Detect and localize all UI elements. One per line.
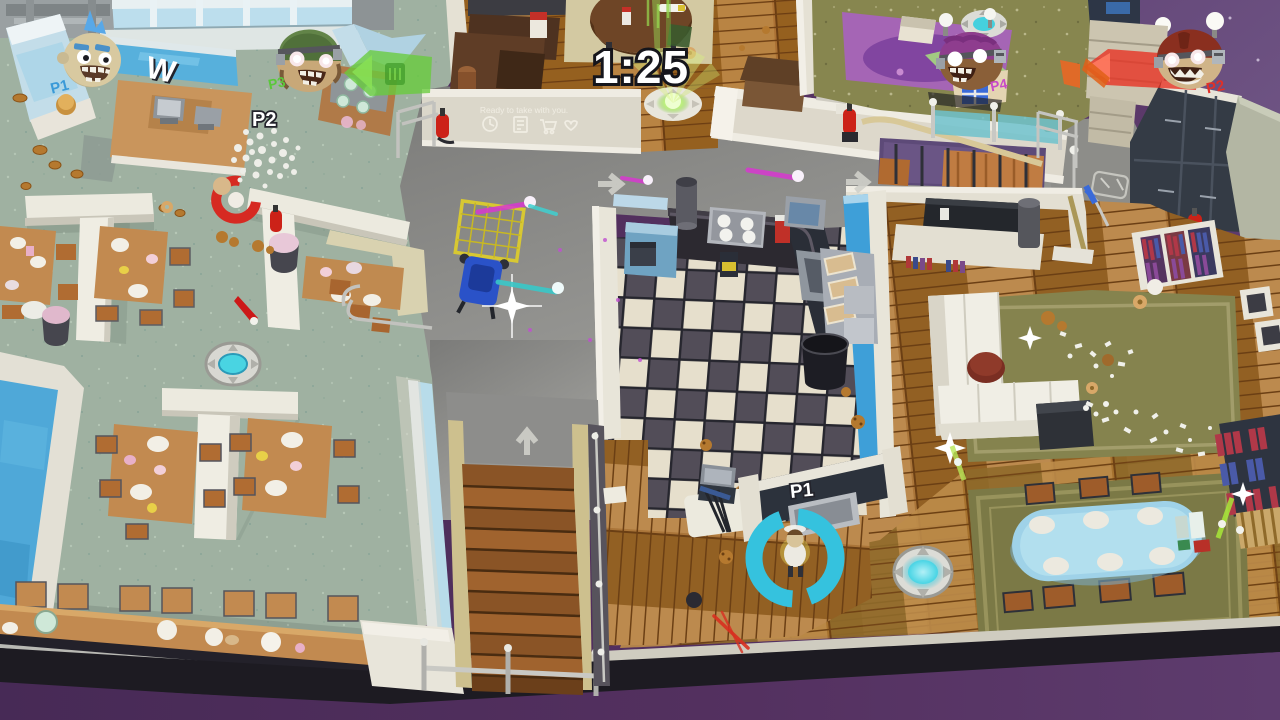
svg-text:P1: P1	[789, 480, 815, 503]
svg-text:Ready to take with you.: Ready to take with you.	[480, 105, 568, 115]
svg-text:1:25: 1:25	[593, 41, 689, 93]
svg-text:P2: P2	[252, 109, 276, 131]
